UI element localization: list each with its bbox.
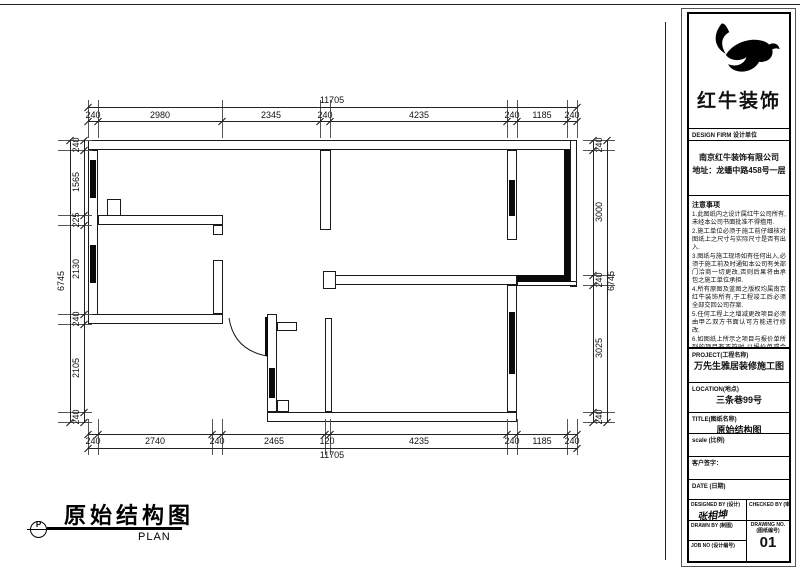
notes-list: 1.此图纸内之设计属红牛公司所有,未经本公司书面批准不得擅用.2.施工单位必须于… bbox=[692, 211, 786, 348]
dim-label: 4235 bbox=[397, 110, 441, 120]
job-no-label: JOB NO (设计编号) bbox=[689, 541, 746, 561]
dim-label: 6745 bbox=[56, 259, 68, 303]
plan-symbol-letter: P bbox=[30, 520, 47, 529]
drawing-no-label: DRAWING NO. (图纸编号) bbox=[747, 521, 789, 534]
project-label: PROJECT(工程名称) bbox=[689, 349, 789, 359]
scale-section: scale (比例) bbox=[689, 434, 789, 457]
dim-label: 6745 bbox=[606, 259, 618, 303]
scale-label: scale (比例) bbox=[689, 434, 789, 444]
dim-label: 2465 bbox=[252, 436, 296, 446]
dim-label: 240 bbox=[550, 436, 594, 446]
designed-by-cell: DESIGNED BY (设计) 张相坤 bbox=[689, 500, 747, 521]
date-label: DATE (日期) bbox=[689, 480, 789, 490]
dim-label: 240 bbox=[195, 436, 239, 446]
design-firm-bar: DESIGN FIRM 设计单位 bbox=[689, 129, 789, 141]
titleblock: 红牛装饰 DESIGN FIRM 设计单位 南京红牛装饰有限公司 地址：龙蟠中路… bbox=[687, 12, 791, 563]
dim-line-bottom-segments bbox=[88, 434, 577, 435]
title-section: TITLE(图纸名称) 原始结构图 bbox=[689, 413, 789, 435]
note-item: 5.任何工程上之增减更改项目必须由甲乙双方书面认可方能进行修改. bbox=[692, 311, 786, 336]
note-item: 6.如图纸上所示之项目与报价单所列的项目有不符时,以报价单或合同为准. bbox=[692, 336, 786, 349]
project-section: PROJECT(工程名称) 万先生雅居装修施工图 bbox=[689, 348, 789, 383]
dim-line-top-overall bbox=[88, 107, 577, 108]
design-firm-label: DESIGN FIRM 设计单位 bbox=[689, 129, 789, 139]
dim-label: 240 bbox=[71, 297, 83, 341]
project-value: 万先生雅居装修施工图 bbox=[689, 359, 789, 372]
location-label: LOCATION(地点) bbox=[689, 383, 789, 393]
dim-label: 2345 bbox=[249, 110, 293, 120]
dim-label: 3000 bbox=[594, 190, 606, 234]
plan-caption-underline bbox=[47, 527, 182, 530]
company-logo-text: 红牛装饰 bbox=[697, 86, 781, 113]
dim-label: 225 bbox=[71, 198, 83, 242]
note-item: 4.所有原图及蓝图之版权均属南京红牛装饰所有,于工程竣工后必须全部交回公司存案. bbox=[692, 286, 786, 311]
client-signature-label: 客户签字： bbox=[689, 457, 789, 467]
company-name: 南京红牛装饰有限公司 bbox=[689, 151, 789, 164]
date-section: DATE (日期) bbox=[689, 480, 789, 500]
designed-by-signature: 张相坤 bbox=[696, 505, 727, 521]
dim-label: 240 bbox=[71, 110, 115, 120]
dim-label: 11705 bbox=[310, 95, 354, 105]
company-address: 地址：龙蟠中路458号一层 bbox=[689, 164, 789, 177]
dim-label: 2980 bbox=[138, 110, 182, 120]
drawing-no-value: 01 bbox=[760, 534, 777, 552]
logo-section: 红牛装饰 bbox=[689, 14, 789, 129]
drawing-sheet: 11705 240 2980 2345 240 4235 240 1185 24… bbox=[0, 0, 800, 575]
dim-label: 240 bbox=[594, 123, 606, 167]
dim-line-top-segments bbox=[88, 121, 577, 122]
dim-label: 4235 bbox=[397, 436, 441, 446]
drawn-by-label: DRAWN BY (制图) bbox=[689, 521, 746, 541]
notes-title: 注意事项 bbox=[692, 200, 786, 210]
location-value: 三条巷99号 bbox=[689, 393, 789, 406]
dim-label: 120 bbox=[305, 436, 349, 446]
dim-line-left-segments bbox=[84, 140, 85, 422]
note-item: 1.此图纸内之设计属红牛公司所有,未经本公司书面批准不得擅用. bbox=[692, 211, 786, 228]
dim-label: 11705 bbox=[310, 450, 354, 460]
note-item: 3.图纸与施工现场如有任何出入,必须于施工前及时通知本公司有关部门洽商一切更改,… bbox=[692, 253, 786, 286]
dim-label: 2740 bbox=[133, 436, 177, 446]
notes-section: 注意事项 1.此图纸内之设计属红牛公司所有,未经本公司书面批准不得擅用.2.施工… bbox=[689, 196, 789, 348]
dim-label: 240 bbox=[71, 395, 83, 439]
company-info-section: 南京红牛装饰有限公司 地址：龙蟠中路458号一层 bbox=[689, 141, 789, 196]
dim-label: 240 bbox=[550, 110, 594, 120]
checked-by-label: CHECKED BY (审核) bbox=[747, 500, 789, 508]
dim-label: 240 bbox=[594, 258, 606, 302]
door-swing-arc bbox=[0, 0, 800, 575]
client-signature-section: 客户签字： bbox=[689, 457, 789, 480]
dim-label: 2130 bbox=[71, 247, 83, 291]
title-label: TITLE(图纸名称) bbox=[689, 413, 789, 423]
company-logo-icon bbox=[696, 14, 782, 88]
dim-label: 3025 bbox=[594, 326, 606, 370]
dim-label: 240 bbox=[303, 110, 347, 120]
location-section: LOCATION(地点) 三条巷99号 bbox=[689, 383, 789, 413]
dim-label: 2105 bbox=[71, 346, 83, 390]
plan-caption-subtitle: PLAN bbox=[138, 531, 171, 543]
drawing-number-row: DRAWN BY (制图) JOB NO (设计编号) DRAWING NO. … bbox=[689, 521, 789, 561]
title-value: 原始结构图 bbox=[689, 423, 789, 435]
dim-line-bottom-overall bbox=[88, 448, 577, 449]
dim-label: 240 bbox=[594, 395, 606, 439]
drawn-job-column: DRAWN BY (制图) JOB NO (设计编号) bbox=[689, 521, 747, 561]
plan-caption-title: 原始结构图 bbox=[64, 498, 194, 530]
checked-by-cell: CHECKED BY (审核) bbox=[747, 500, 789, 521]
note-item: 2.施工单位必须于施工前仔细核对图纸上之尺寸与实际尺寸是否有出入. bbox=[692, 228, 786, 253]
designed-checked-row: DESIGNED BY (设计) 张相坤 CHECKED BY (审核) bbox=[689, 500, 789, 522]
drawing-no-cell: DRAWING NO. (图纸编号) 01 bbox=[747, 521, 789, 561]
